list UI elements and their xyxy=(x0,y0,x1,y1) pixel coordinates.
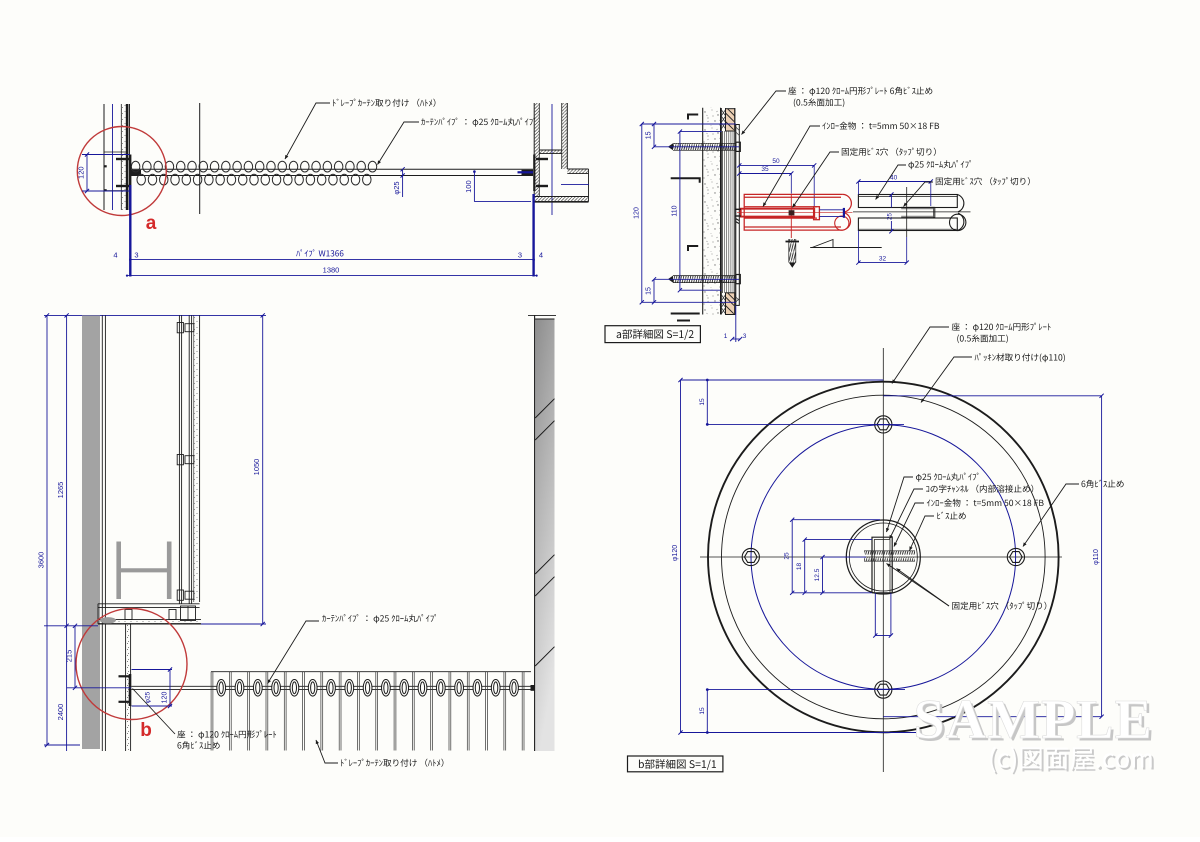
svg-text:4: 4 xyxy=(539,250,543,259)
svg-text:4: 4 xyxy=(113,250,117,259)
svg-text:18: 18 xyxy=(796,563,803,571)
svg-text:15: 15 xyxy=(646,287,653,295)
svg-text:1380: 1380 xyxy=(323,265,340,274)
svg-text:15: 15 xyxy=(699,707,706,715)
svg-text:3: 3 xyxy=(743,333,747,340)
svg-text:φ25: φ25 xyxy=(145,691,152,703)
svg-text:2400: 2400 xyxy=(56,704,65,721)
svg-text:1265: 1265 xyxy=(56,482,65,499)
svg-text:120: 120 xyxy=(77,166,86,179)
svg-text:15: 15 xyxy=(646,131,653,139)
svg-text:110: 110 xyxy=(671,205,678,216)
svg-text:15: 15 xyxy=(699,398,706,406)
svg-text:a: a xyxy=(146,213,157,234)
svg-text:SAMPLE: SAMPLE xyxy=(914,689,1153,751)
svg-text:3: 3 xyxy=(134,250,138,259)
svg-text:25: 25 xyxy=(886,213,893,220)
svg-text:32: 32 xyxy=(879,255,887,262)
svg-text:3600: 3600 xyxy=(37,552,46,569)
svg-text:1: 1 xyxy=(724,333,728,340)
svg-text:100: 100 xyxy=(464,180,473,193)
svg-text:120: 120 xyxy=(162,692,169,704)
svg-text:φ120: φ120 xyxy=(672,545,679,561)
svg-text:φ25: φ25 xyxy=(392,181,401,194)
svg-text:b: b xyxy=(140,720,152,741)
svg-text:φ110: φ110 xyxy=(1093,549,1100,565)
svg-text:120: 120 xyxy=(633,207,640,219)
svg-text:12.5: 12.5 xyxy=(814,568,821,581)
svg-text:1050: 1050 xyxy=(252,459,261,476)
svg-text:35: 35 xyxy=(761,166,769,173)
svg-text:50: 50 xyxy=(772,158,780,165)
svg-text:215: 215 xyxy=(65,650,74,663)
svg-text:3: 3 xyxy=(518,250,522,259)
svg-text:25: 25 xyxy=(784,552,791,560)
